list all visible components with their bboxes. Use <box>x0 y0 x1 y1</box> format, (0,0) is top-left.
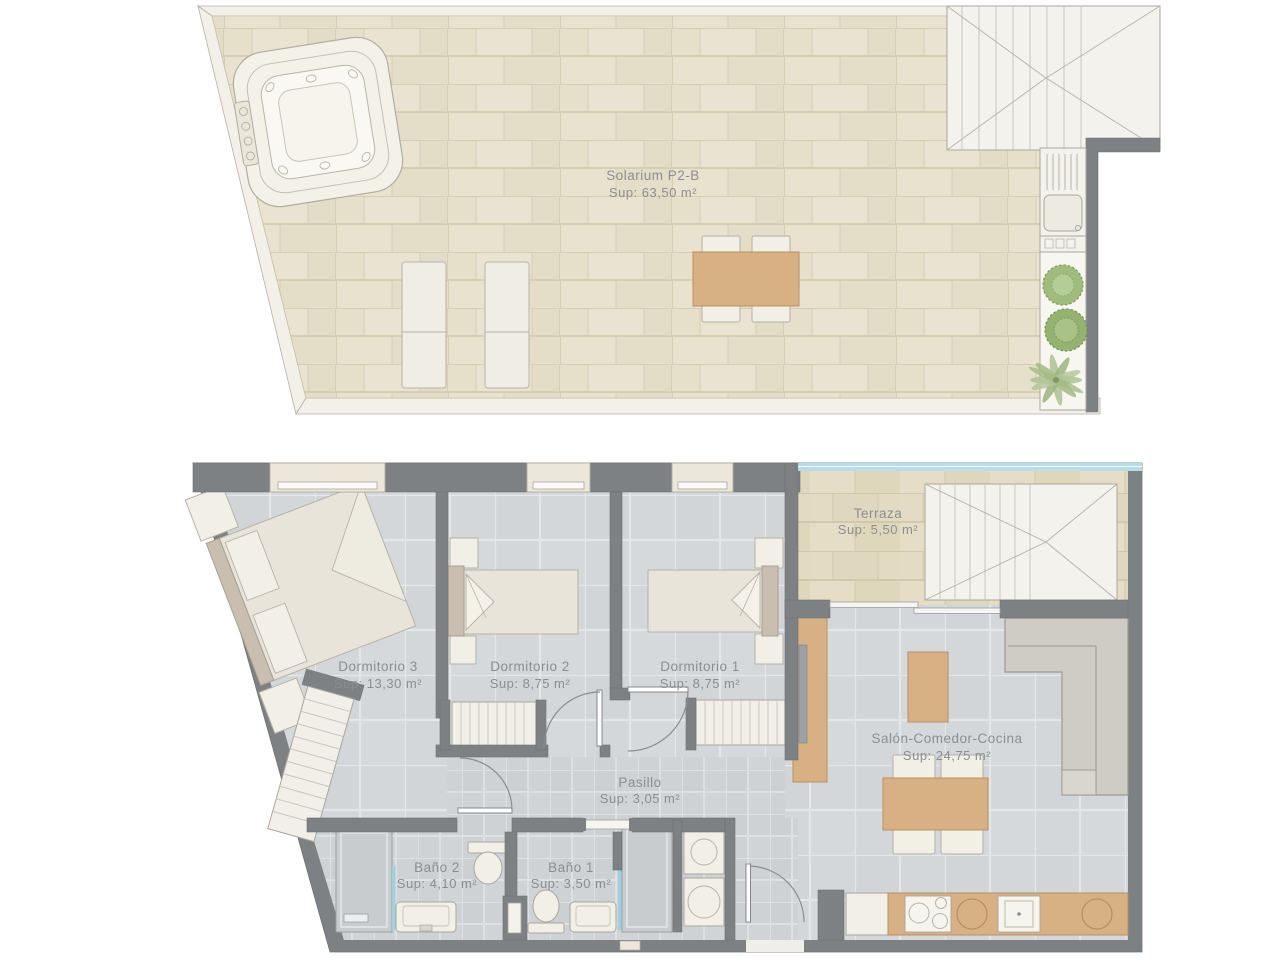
bath2-area: Sup: 4,10 m² <box>397 876 478 891</box>
dorm1-wardrobe <box>696 700 785 745</box>
dorm1-nightstand-2 <box>755 634 783 664</box>
dorm2-nightstand-1 <box>450 538 478 568</box>
dorm3-area: Sup: 13,30 m² <box>334 676 422 691</box>
bath2-shower-glass <box>392 866 396 930</box>
dining-table <box>883 778 988 830</box>
kitchen-pillar <box>818 890 844 940</box>
bath2-label: Baño 2 <box>414 860 460 875</box>
window-dorm3 <box>270 463 385 492</box>
dorm3-label: Dormitorio 3 <box>338 659 418 674</box>
wall-dorm2-bottom <box>436 745 548 757</box>
wall-bath-divider <box>505 832 517 904</box>
wall-terraza-bottom-1 <box>785 600 830 618</box>
plant-bush-1 <box>1043 265 1083 305</box>
wall-entry <box>725 818 735 940</box>
wall-terraza-bottom-2 <box>1000 600 1128 618</box>
solarium-label: Solarium P2-B <box>606 168 700 183</box>
solarium-parapet-top <box>198 6 947 16</box>
jacuzzi <box>227 33 407 212</box>
dorm1-headboard <box>762 566 778 636</box>
floor-plan-drawing: Solarium P2-B Sup: 63,50 m² <box>0 0 1280 960</box>
apartment-plan: Terraza Sup: 5,50 m² Dormitorio 3 Sup: 1… <box>185 439 1142 952</box>
window-dorm2 <box>527 463 590 492</box>
barbecue-unit <box>1040 236 1086 252</box>
dorm2-label: Dormitorio 2 <box>490 659 570 674</box>
terraza-label: Terraza <box>854 506 903 521</box>
kitchen-sink-unit <box>998 896 1040 932</box>
wall-dorm3-dorm2 <box>436 492 448 718</box>
sun-lounger-2 <box>485 262 529 388</box>
bath2-shower <box>336 828 396 932</box>
dorm2-nightstand-2 <box>450 636 476 664</box>
pasillo-label: Pasillo <box>618 775 661 790</box>
outdoor-sink-unit <box>1040 148 1086 236</box>
wall-washer-left <box>673 820 682 932</box>
cooktop <box>905 896 951 932</box>
solarium-area-label: Sup: 63,50 m² <box>609 185 697 200</box>
terraza-staircase <box>925 484 1117 600</box>
plant-bush-2 <box>1045 309 1087 351</box>
wardrobe2-stub-left <box>440 700 450 750</box>
wall-shower1-stub <box>613 832 622 870</box>
duct-slot <box>508 903 521 933</box>
tv-screen <box>799 645 807 743</box>
solarium-parapet-bottom <box>296 398 1100 414</box>
wall-dorm2-dorm1 <box>610 492 622 688</box>
dorm2-headboard <box>448 566 464 636</box>
wall-dorm2-bottom-stub <box>600 745 610 757</box>
sun-lounger-1 <box>402 262 446 388</box>
dorm2-wardrobe <box>452 702 536 747</box>
wardrobe1-stub-left <box>686 698 696 750</box>
fridge <box>846 893 888 935</box>
bath1-washbasin <box>570 902 616 932</box>
sofa-armrest <box>1062 770 1096 795</box>
washer-dryer-column <box>684 830 724 926</box>
door-bath1-sliding <box>581 818 634 831</box>
bath1-shower-glass <box>618 866 622 930</box>
dorm2-area: Sup: 8,75 m² <box>490 676 571 691</box>
bath1-area: Sup: 3,50 m² <box>531 876 612 891</box>
dorm1-label: Dormitorio 1 <box>660 659 740 674</box>
dorm1-area: Sup: 8,75 m² <box>660 676 741 691</box>
dorm1-nightstand-1 <box>755 538 783 568</box>
solarium-staircase <box>947 6 1160 150</box>
salon-area: Sup: 24,75 m² <box>903 748 991 763</box>
terraza-area: Sup: 5,50 m² <box>838 522 919 537</box>
kitchen-counter <box>846 893 1128 935</box>
bath2-washbasin <box>396 902 456 932</box>
wall-dorm1-bottom-stub <box>610 688 630 700</box>
coffee-table <box>908 652 948 722</box>
salon-label: Salón-Comedor-Cocina <box>871 731 1022 746</box>
pasillo-area: Sup: 3,05 m² <box>600 791 681 806</box>
window-bath-bottom <box>620 941 640 950</box>
solarium-dining-table <box>693 252 799 306</box>
solarium-plan: Solarium P2-B Sup: 63,50 m² <box>198 6 1160 414</box>
bath1-label: Baño 1 <box>548 860 594 875</box>
floor-plan-document: Solarium P2-B Sup: 63,50 m² <box>0 0 1280 960</box>
window-dorm1 <box>672 463 733 492</box>
dining-set <box>883 755 988 854</box>
solarium-right-wall <box>1086 138 1160 412</box>
wall-bath-top-1 <box>307 818 457 832</box>
wall-bath-top-2 <box>512 818 583 832</box>
entrance-opening <box>746 940 804 952</box>
bath1-shower <box>618 824 672 932</box>
